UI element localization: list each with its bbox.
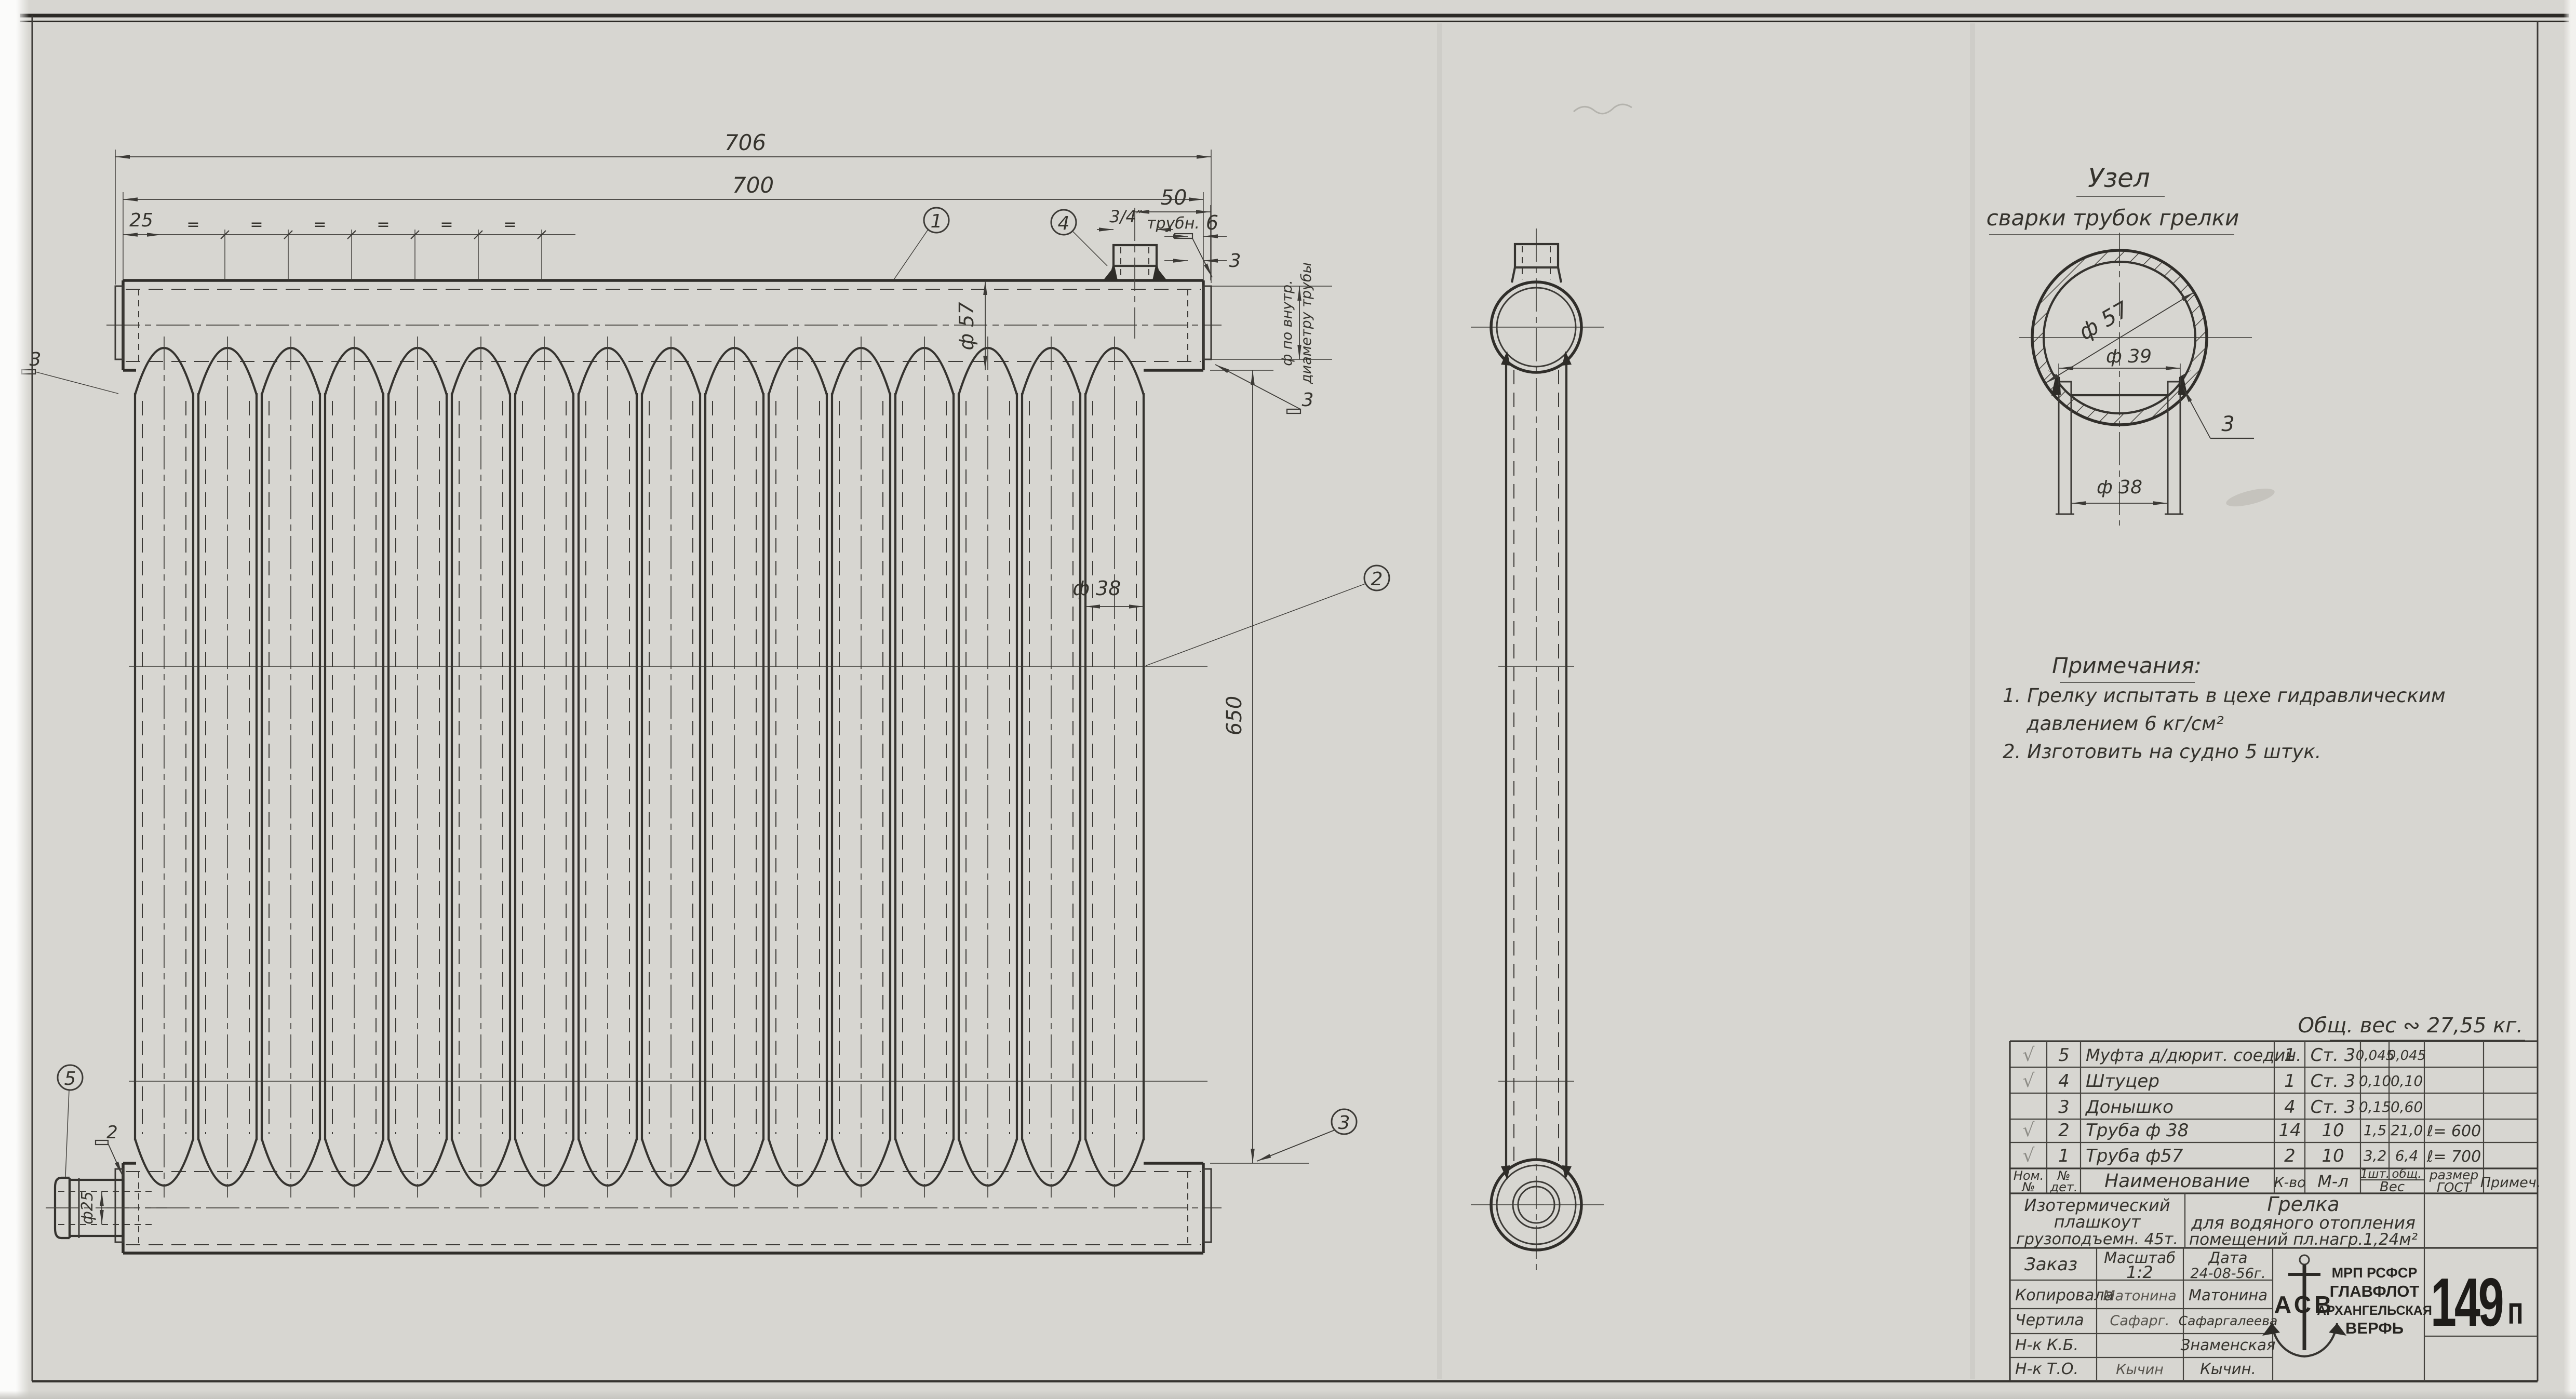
- row4-check: √: [2023, 1070, 2035, 1092]
- role-kb-name: Знаменская: [2181, 1336, 2276, 1354]
- role-copied-name: Матонина: [2189, 1286, 2268, 1304]
- hdr-size2: ГОСТ: [2437, 1180, 2472, 1195]
- org-block: АСВ МРП РСФСР ГЛАВФЛОТ АРХАНГЕЛЬСКАЯ ВЕР…: [2262, 1255, 2521, 1356]
- blueprint-scan: 706 700 25 = = = = = =: [0, 0, 2576, 1399]
- row1-w2: 6,4: [2395, 1147, 2419, 1164]
- total-weight-text: Общ. вес ∾ 27,55 кг.: [2298, 1014, 2524, 1038]
- tube-bank: [135, 337, 1144, 1198]
- row4-mat: Ст. 3: [2311, 1071, 2356, 1092]
- eq-mark-1: =: [186, 216, 199, 234]
- drawing-number-suffix: п: [2507, 1290, 2521, 1333]
- detail-dim-f38: ф 38: [2097, 477, 2142, 498]
- eq-mark-2: =: [250, 216, 263, 234]
- row2-check: √: [2023, 1120, 2035, 1141]
- photo-edge-right: [2564, 0, 2576, 1399]
- row2-w2: 21,0: [2391, 1122, 2423, 1139]
- row2-no: 2: [2058, 1120, 2070, 1141]
- row3-mat: Ст. 3: [2311, 1097, 2356, 1118]
- drawing-number-stamp: 149 п: [2431, 1264, 2521, 1340]
- dim-6: 6: [1206, 211, 1218, 234]
- detail-weld-3: 3: [2221, 412, 2234, 436]
- drawing-canvas: 706 700 25 = = = = = =: [0, 0, 2576, 1399]
- notes-block: Примечания: 1. Грелку испытать в цехе ги…: [2003, 653, 2446, 763]
- row2-mat: 10: [2322, 1120, 2344, 1141]
- eq-mark-5: =: [440, 216, 453, 234]
- eq-mark-3: =: [313, 216, 326, 234]
- role-drawn-sig: Сафарг.: [2110, 1313, 2170, 1329]
- row5-check: √: [2023, 1044, 2035, 1066]
- row2-w1: 1,5: [2364, 1122, 2387, 1139]
- row2-size: ℓ= 600: [2426, 1122, 2481, 1140]
- row3-w2: 0,60: [2391, 1098, 2423, 1115]
- org-line-2: ГЛАВФЛОТ: [2330, 1282, 2420, 1300]
- photo-edge-left: [0, 0, 29, 1399]
- project-line-3: грузоподъемн. 45т.: [2016, 1230, 2178, 1248]
- detail-title-1: Узел: [2088, 163, 2150, 193]
- org-line-4: ВЕРФЬ: [2345, 1319, 2404, 1337]
- dim-f38: ф 38: [1073, 577, 1121, 600]
- scale-value: 1:2: [2126, 1262, 2153, 1282]
- dim-700: 700: [732, 172, 774, 198]
- row5-mat: Ст. 3: [2311, 1045, 2356, 1066]
- weld-right-3: 3: [1302, 389, 1314, 411]
- bottom-left-fitting: [46, 1178, 167, 1238]
- part-title-3: помещений пл.нагр.1,24м²: [2189, 1230, 2418, 1249]
- row5-w2: 0,045: [2387, 1048, 2426, 1064]
- hdr-note: Примеч.: [2480, 1175, 2541, 1191]
- row5-no: 5: [2058, 1045, 2070, 1066]
- project-line-2: плашкоут: [2054, 1212, 2141, 1232]
- eq-mark-6: =: [503, 216, 516, 234]
- row4-w1: 0,10: [2359, 1072, 2391, 1089]
- note-line-2: давлением 6 кг/см²: [2026, 712, 2224, 735]
- dim-thread: 3/4″: [1109, 207, 1143, 226]
- drawing-number-main: 149: [2431, 1264, 2503, 1340]
- dim-25: 25: [129, 210, 153, 231]
- row5-qty: 1: [2284, 1045, 2296, 1066]
- callout-2: 2: [1371, 569, 1383, 590]
- row3-w1: 0,15: [2359, 1098, 2391, 1115]
- front-dimensions: 706 700 25 = = = = = =: [22, 130, 1332, 1225]
- hdr-det2: дет.: [2050, 1180, 2078, 1194]
- role-to-sig: Кычин: [2116, 1362, 2164, 1378]
- weld-left-3: 3: [30, 349, 42, 370]
- dim-f57: ф 57: [955, 302, 978, 351]
- order-label: Заказ: [2024, 1254, 2077, 1275]
- row1-w1: 3,2: [2364, 1147, 2387, 1164]
- callout-5: 5: [64, 1068, 76, 1089]
- row3-no: 3: [2058, 1097, 2070, 1118]
- flare-note-1: ф по внутр.: [1279, 280, 1295, 366]
- hdr-name: Наименование: [2104, 1171, 2250, 1192]
- callout-4: 4: [1058, 213, 1070, 234]
- dim-650: 650: [1223, 696, 1246, 735]
- notes-title: Примечания:: [2052, 653, 2202, 678]
- photo-edge-bottom: [0, 1391, 2576, 1399]
- row3-qty: 4: [2284, 1097, 2296, 1118]
- role-copied-label: Копировала: [2015, 1286, 2114, 1304]
- row1-check: √: [2023, 1145, 2035, 1166]
- hdr-qty: К-во: [2274, 1175, 2305, 1191]
- dim-50: 50: [1161, 186, 1187, 210]
- detail-title-2: сварки трубок грелки: [1987, 205, 2239, 231]
- row5-name: Муфта д/дюрит. соедин.: [2086, 1045, 2301, 1065]
- hdr-wes: Вес: [2380, 1179, 2405, 1195]
- dim-thread-unit: трубн.: [1147, 214, 1200, 233]
- row4-w2: 0,10: [2391, 1072, 2423, 1089]
- detail-view: Узел сварки трубок грелки ф 57 ф 39 ф 38: [1987, 163, 2254, 526]
- row1-mat: 10: [2322, 1146, 2344, 1166]
- row1-qty: 2: [2284, 1146, 2296, 1166]
- date-value: 24-08-56г.: [2190, 1266, 2265, 1282]
- front-view: [46, 208, 1222, 1253]
- role-drawn-label: Чертила: [2015, 1311, 2084, 1329]
- callout-1: 1: [931, 211, 943, 232]
- row2-qty: 14: [2278, 1120, 2301, 1141]
- note-line-1: 1. Грелку испытать в цехе гидравлическим: [2003, 684, 2446, 707]
- row1-no: 1: [2058, 1146, 2070, 1166]
- hdr-mat: М-л: [2317, 1172, 2349, 1191]
- org-line-3: АРХАНГЕЛЬСКАЯ: [2317, 1303, 2432, 1318]
- role-copied-sig: Матонина: [2103, 1288, 2177, 1304]
- pitch-extensions: [225, 230, 542, 280]
- flare-note-2: диаметру трубы: [1298, 262, 1314, 384]
- hdr-nom2: №: [2021, 1180, 2035, 1194]
- role-kb-label: Н-к К.Б.: [2015, 1336, 2078, 1354]
- dim-wall3: 3: [1229, 250, 1241, 272]
- note-line-3: 2. Изготовить на судно 5 штук.: [2003, 741, 2321, 763]
- row1-size: ℓ= 700: [2426, 1148, 2481, 1166]
- role-to-name: Кычин.: [2200, 1360, 2256, 1378]
- row4-no: 4: [2058, 1071, 2070, 1092]
- callout-3: 3: [1338, 1112, 1350, 1134]
- row2-name: Труба ф 38: [2086, 1120, 2189, 1141]
- role-drawn-name: Сафаргалеева: [2179, 1313, 2278, 1328]
- total-weight: Общ. вес ∾ 27,55 кг.: [2298, 1014, 2526, 1040]
- row4-qty: 1: [2284, 1071, 2296, 1092]
- row4-name: Штуцер: [2086, 1071, 2159, 1092]
- eq-mark-4: =: [377, 216, 390, 234]
- dim-f25: ф25: [78, 1191, 97, 1225]
- date-label: Дата: [2207, 1249, 2247, 1267]
- detail-dim-f39: ф 39: [2106, 346, 2152, 367]
- row3-name: Донышко: [2085, 1097, 2173, 1118]
- role-to-label: Н-к Т.О.: [2015, 1360, 2078, 1378]
- side-view: [1471, 228, 1604, 1275]
- dim-706: 706: [725, 130, 766, 155]
- org-line-1: МРП РСФСР: [2332, 1265, 2418, 1281]
- row1-name: Труба ф57: [2086, 1146, 2183, 1166]
